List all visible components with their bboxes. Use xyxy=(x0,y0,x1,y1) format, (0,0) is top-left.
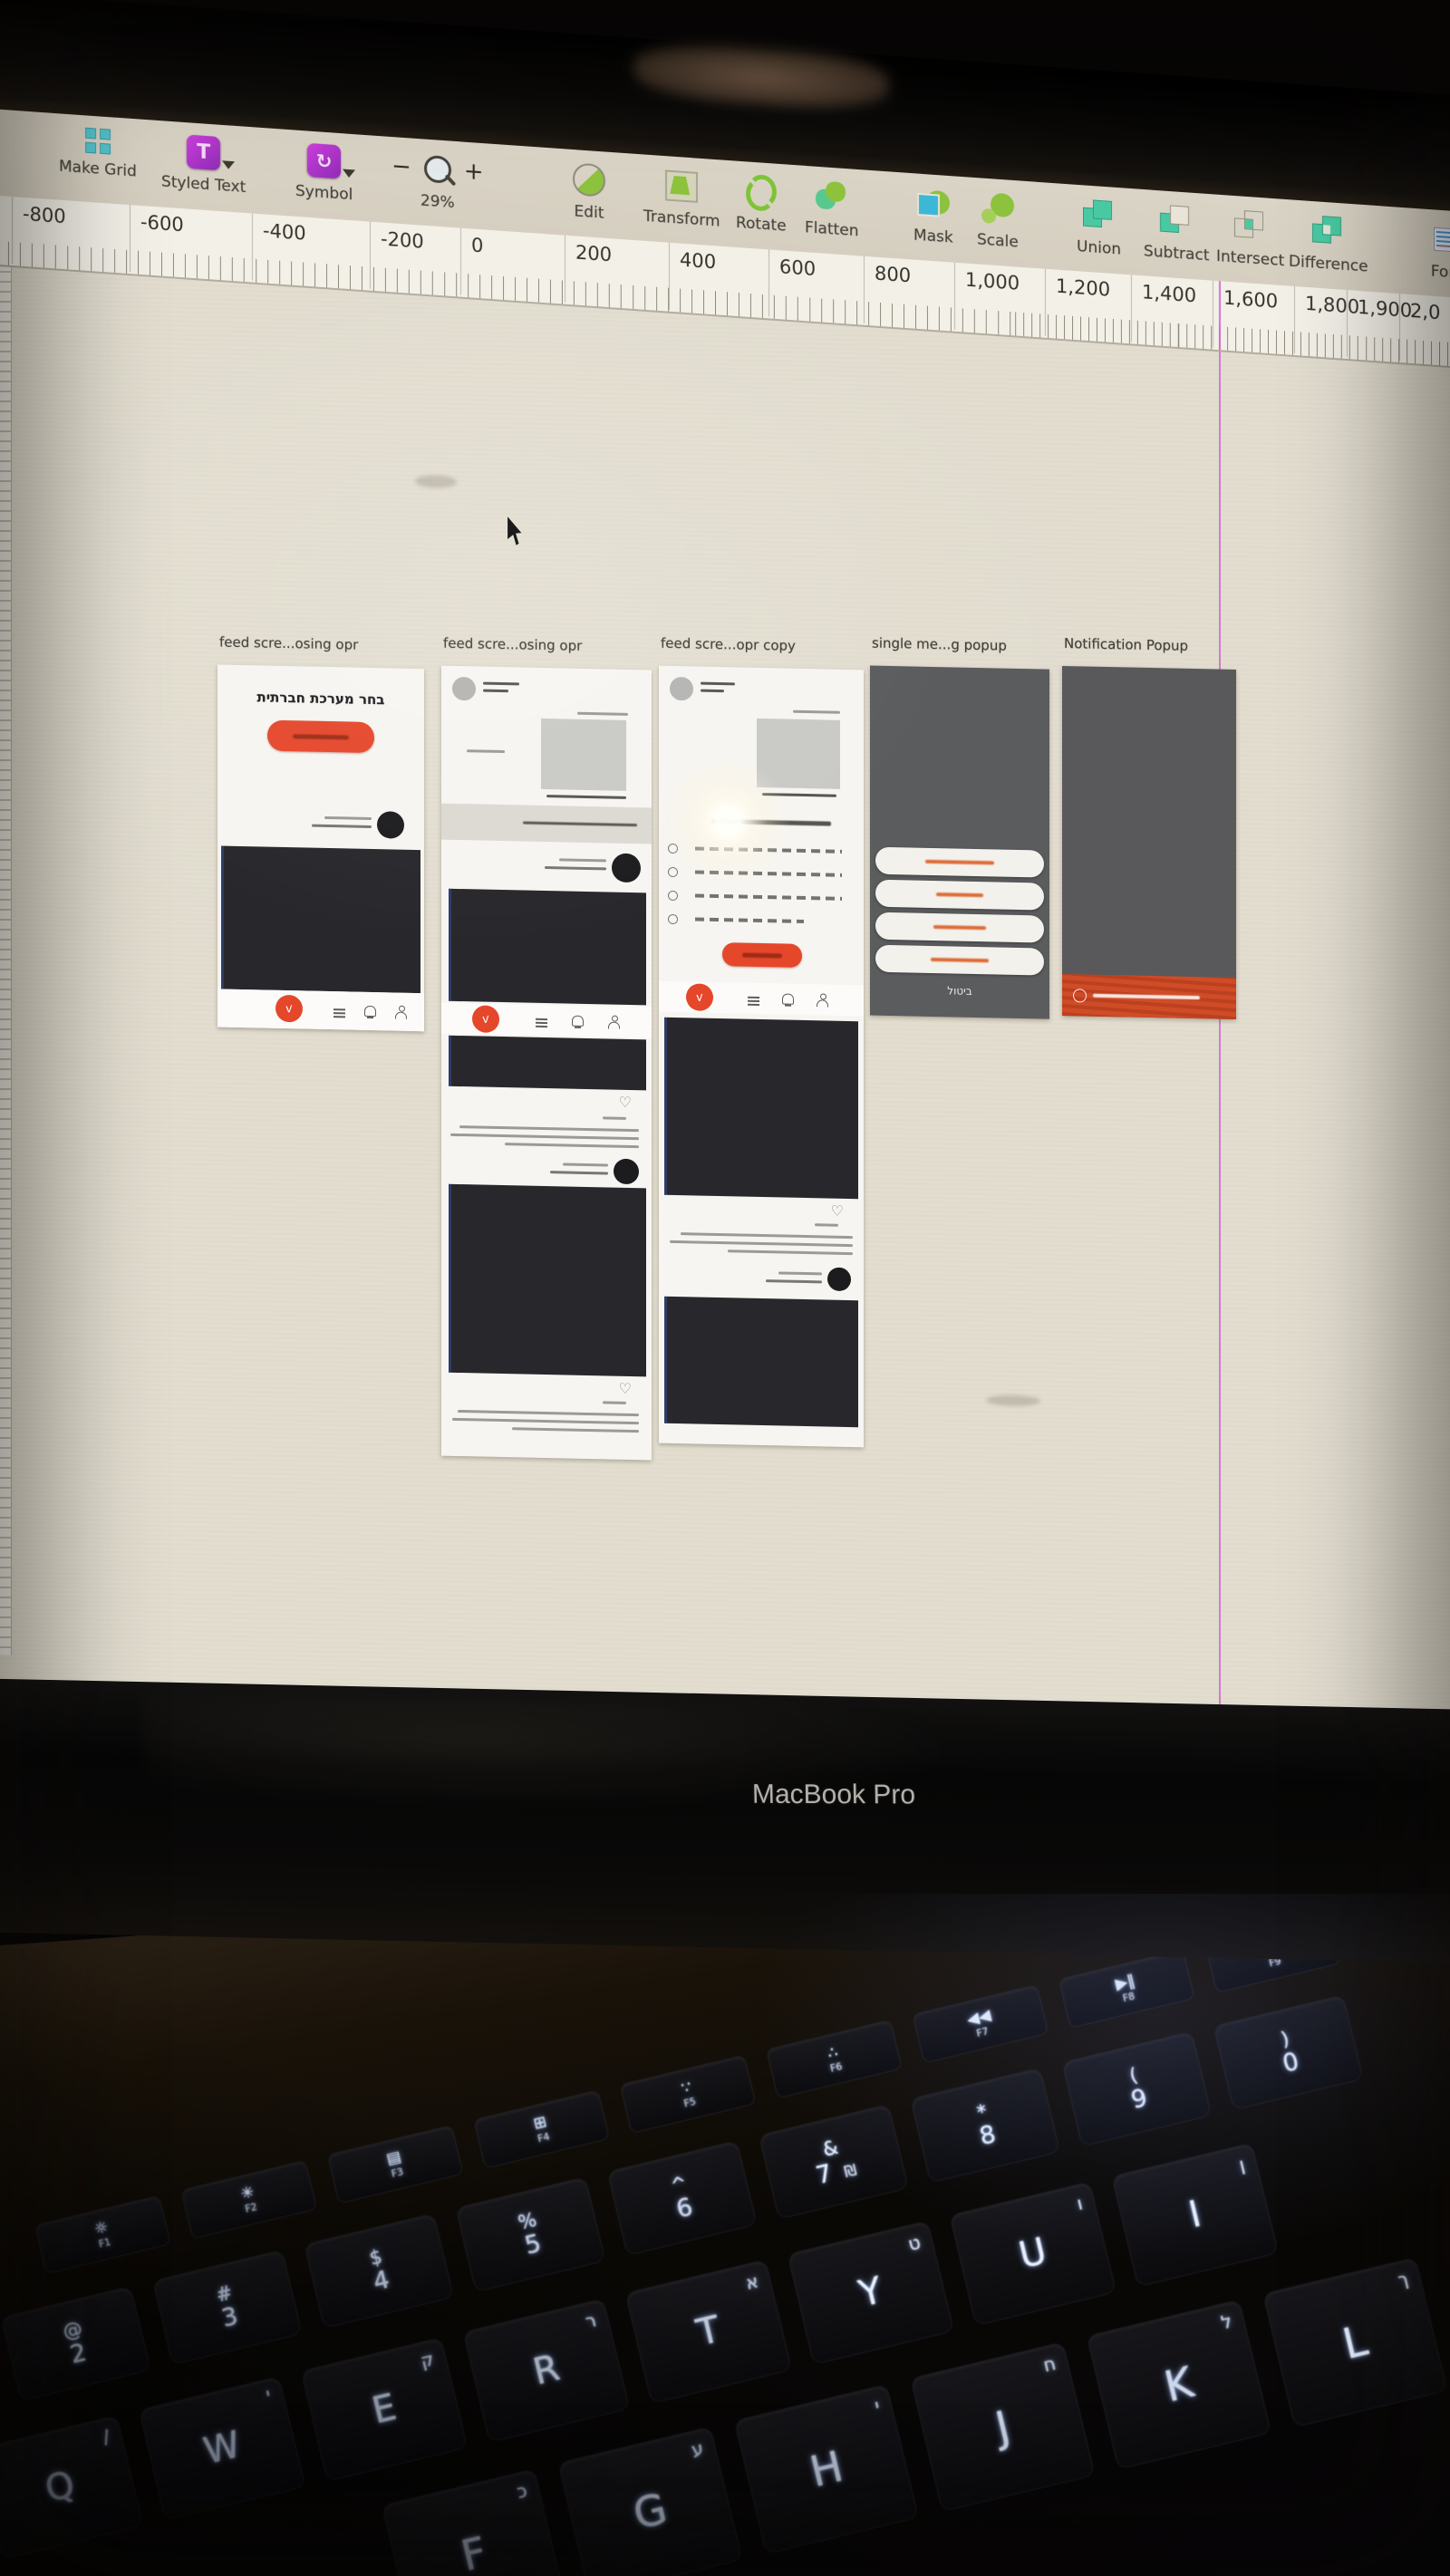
profile-icon[interactable] xyxy=(608,1021,620,1028)
popup-option-2[interactable] xyxy=(875,880,1044,911)
styled-text-icon: T xyxy=(187,135,220,171)
mask-icon xyxy=(917,188,950,221)
photo-macbook-design-app: feed scre...osing opr feed scre...osing … xyxy=(0,0,1450,2576)
key-l: Lך xyxy=(1263,2258,1446,2426)
mock-tabbar: v xyxy=(217,989,424,1031)
screen-bottom-bezel: MacBook Pro xyxy=(0,1678,1450,1964)
key-f2: ☀F2 xyxy=(181,2161,316,2238)
styled-text-button[interactable]: T Styled Text xyxy=(161,133,246,198)
key-f8: ▶‖F8 xyxy=(1059,1950,1194,2027)
key-4: $4 xyxy=(304,2214,453,2327)
mock-post-image[interactable] xyxy=(664,1018,858,1199)
key-f6: ∴F6 xyxy=(767,2021,902,2098)
zoom-in-button[interactable]: + xyxy=(464,159,484,185)
bell-icon[interactable] xyxy=(364,1006,376,1017)
key-e: Eק xyxy=(302,2338,468,2480)
transform-button[interactable]: Transform xyxy=(643,167,720,231)
key-f1: ☼F1 xyxy=(35,2196,170,2273)
symbol-button[interactable]: Symbol xyxy=(295,142,353,204)
artboard-feed-opening[interactable]: בחר מערכת חברתית v xyxy=(217,664,424,1031)
key-w: W' xyxy=(140,2377,305,2519)
mock-media-placeholder[interactable] xyxy=(541,719,626,791)
key-u: Uו xyxy=(950,2183,1116,2325)
profile-icon[interactable] xyxy=(817,999,828,1007)
key-y: Yט xyxy=(788,2221,953,2363)
artboard-title-3[interactable]: feed scre...opr copy xyxy=(661,635,796,654)
feed-list-icon[interactable] xyxy=(536,1018,547,1020)
key-0: )0 xyxy=(1214,1996,1363,2109)
intersect-button[interactable]: Intersect xyxy=(1216,207,1284,270)
grid-squares-icon xyxy=(85,128,111,155)
like-heart-icon[interactable] xyxy=(619,1095,632,1110)
key-f-letter: Fכ xyxy=(382,2469,565,2576)
mock-avatar[interactable] xyxy=(827,1268,851,1292)
mock-logo-circle xyxy=(670,677,693,701)
artboard-title-5[interactable]: Notification Popup xyxy=(1064,635,1188,654)
magenta-guide-line[interactable] xyxy=(1219,281,1221,350)
mock-post-image[interactable] xyxy=(664,1297,858,1427)
difference-button[interactable]: Difference xyxy=(1289,212,1368,276)
key-9: (9 xyxy=(1062,2032,1211,2146)
key-f7: ◀◀F7 xyxy=(913,1985,1049,2062)
mock-media-placeholder[interactable] xyxy=(757,719,840,789)
key-2: @2 xyxy=(2,2287,150,2400)
rotate-icon xyxy=(746,176,777,208)
make-grid-button[interactable]: Make Grid xyxy=(59,126,137,181)
mock-submit-button[interactable] xyxy=(722,942,802,968)
artboard-title-1[interactable]: feed scre...osing opr xyxy=(219,633,358,652)
like-heart-icon[interactable] xyxy=(831,1204,844,1219)
mock-home-button[interactable]: v xyxy=(469,1003,502,1035)
chevron-down-icon[interactable] xyxy=(343,169,355,178)
mock-avatar[interactable] xyxy=(614,1159,639,1185)
transform-icon xyxy=(665,169,698,203)
key-k: Kל xyxy=(1087,2301,1271,2469)
key-f3: ▤F3 xyxy=(328,2126,463,2203)
mock-avatar[interactable] xyxy=(377,811,404,839)
symbol-sync-icon xyxy=(307,143,341,179)
key-r: Rר xyxy=(464,2299,630,2441)
key-h: Hי xyxy=(735,2385,918,2553)
artboard-single-message-popup[interactable]: ביטול xyxy=(870,666,1049,1019)
profile-icon[interactable] xyxy=(395,1012,407,1019)
artboard-feed-copy[interactable]: v xyxy=(659,666,864,1448)
boolean-union-icon xyxy=(1084,200,1115,231)
bezel-reflection xyxy=(634,40,888,114)
rotate-button[interactable]: Rotate xyxy=(736,173,787,236)
bell-icon[interactable] xyxy=(572,1016,584,1027)
feed-list-icon[interactable] xyxy=(333,1008,345,1010)
like-heart-icon[interactable] xyxy=(619,1382,632,1396)
mock-banner xyxy=(441,804,652,844)
key-5: %5 xyxy=(456,2177,604,2291)
key-f4: ⊞F4 xyxy=(474,2090,609,2167)
popup-option-1[interactable] xyxy=(875,847,1044,878)
notification-icon xyxy=(1073,989,1087,1002)
flatten-icon xyxy=(816,180,848,214)
boolean-intersect-icon xyxy=(1235,210,1266,241)
union-button[interactable]: Union xyxy=(1077,197,1121,258)
edit-button[interactable]: Edit xyxy=(573,161,605,223)
design-canvas[interactable]: feed scre...osing opr feed scre...osing … xyxy=(0,241,1450,1760)
key-3: #3 xyxy=(153,2251,302,2364)
font-panel-icon xyxy=(1434,227,1450,253)
key-t: Tא xyxy=(626,2260,792,2402)
mock-post-image[interactable] xyxy=(449,1184,646,1377)
mock-home-button[interactable]: v xyxy=(683,981,716,1013)
font-button[interactable]: Fon xyxy=(1428,221,1450,283)
artboard-title-2[interactable]: feed scre...osing opr xyxy=(443,635,582,654)
zoom-out-button[interactable]: − xyxy=(391,154,411,179)
artboard-title-4[interactable]: single me...g popup xyxy=(872,635,1007,654)
key-q: Q/ xyxy=(0,2416,142,2558)
magnifier-icon[interactable] xyxy=(424,155,451,184)
zoom-level: 29% xyxy=(420,192,455,213)
mock-post-image[interactable] xyxy=(449,889,646,1006)
mouse-cursor xyxy=(507,516,529,546)
mock-logo-circle xyxy=(452,677,476,701)
mock-heading-hebrew: בחר מערכת חברתית xyxy=(217,688,424,709)
key-g: Gע xyxy=(558,2427,741,2576)
vertical-ruler[interactable] xyxy=(0,241,12,1655)
scale-icon xyxy=(981,192,1014,226)
mock-image-placeholder[interactable] xyxy=(221,846,420,994)
macbook-pro-logo: MacBook Pro xyxy=(734,1780,934,1811)
feed-list-icon[interactable] xyxy=(748,997,759,999)
scale-button[interactable]: Scale xyxy=(977,189,1019,251)
key-6: ^6 xyxy=(608,2141,757,2254)
mock-post-image[interactable] xyxy=(449,1036,646,1091)
key-8: *8 xyxy=(911,2069,1059,2182)
mock-tabbar: v xyxy=(659,981,864,1017)
key-7: &7₪ xyxy=(759,2105,908,2218)
key-i: Iן xyxy=(1112,2144,1278,2286)
mock-primary-button[interactable] xyxy=(267,720,374,753)
artboard-feed-2[interactable]: v xyxy=(441,666,652,1461)
popup-option-4[interactable] xyxy=(875,945,1044,976)
edit-icon xyxy=(573,162,605,198)
chevron-down-icon[interactable] xyxy=(222,160,235,169)
zoom-controls: − + 29% xyxy=(391,149,484,214)
flatten-button[interactable]: Flatten xyxy=(805,178,858,240)
key-f5: ∵F5 xyxy=(621,2056,756,2133)
artboard-notification-popup[interactable] xyxy=(1062,666,1236,1019)
notification-banner[interactable] xyxy=(1062,974,1236,1019)
mock-home-button[interactable]: v xyxy=(273,993,305,1025)
boolean-difference-icon xyxy=(1313,216,1344,246)
mock-tabbar: v xyxy=(441,1003,652,1038)
mask-button[interactable]: Mask xyxy=(913,186,953,247)
boolean-subtract-icon xyxy=(1161,206,1192,236)
bell-icon[interactable] xyxy=(782,993,794,1004)
popup-option-3[interactable] xyxy=(875,912,1044,943)
popup-cancel-label[interactable]: ביטול xyxy=(870,983,1049,999)
key-j: Jח xyxy=(911,2342,1094,2511)
mock-avatar[interactable] xyxy=(612,854,641,883)
subtract-button[interactable]: Subtract xyxy=(1144,201,1209,265)
